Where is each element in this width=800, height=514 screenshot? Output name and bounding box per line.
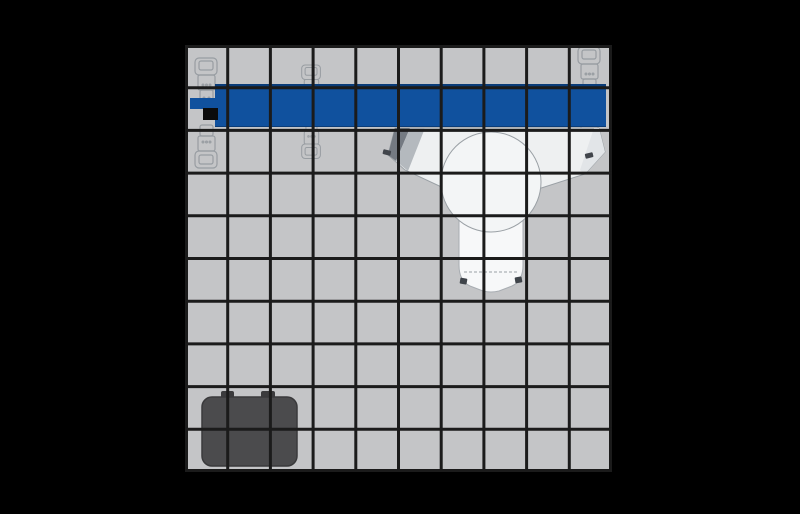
conveyor-belt[interactable] bbox=[215, 84, 606, 127]
machine-foot-left-icon bbox=[460, 278, 468, 285]
workcell-scene[interactable] bbox=[185, 45, 612, 472]
conveyor-bottom-edge bbox=[215, 126, 606, 127]
viewport[interactable] bbox=[0, 0, 800, 514]
conveyor-end-block[interactable] bbox=[203, 108, 218, 120]
conveyor-side-tab[interactable] bbox=[190, 98, 216, 109]
container-body[interactable] bbox=[202, 397, 297, 466]
machine-foot-right-icon bbox=[515, 276, 523, 283]
